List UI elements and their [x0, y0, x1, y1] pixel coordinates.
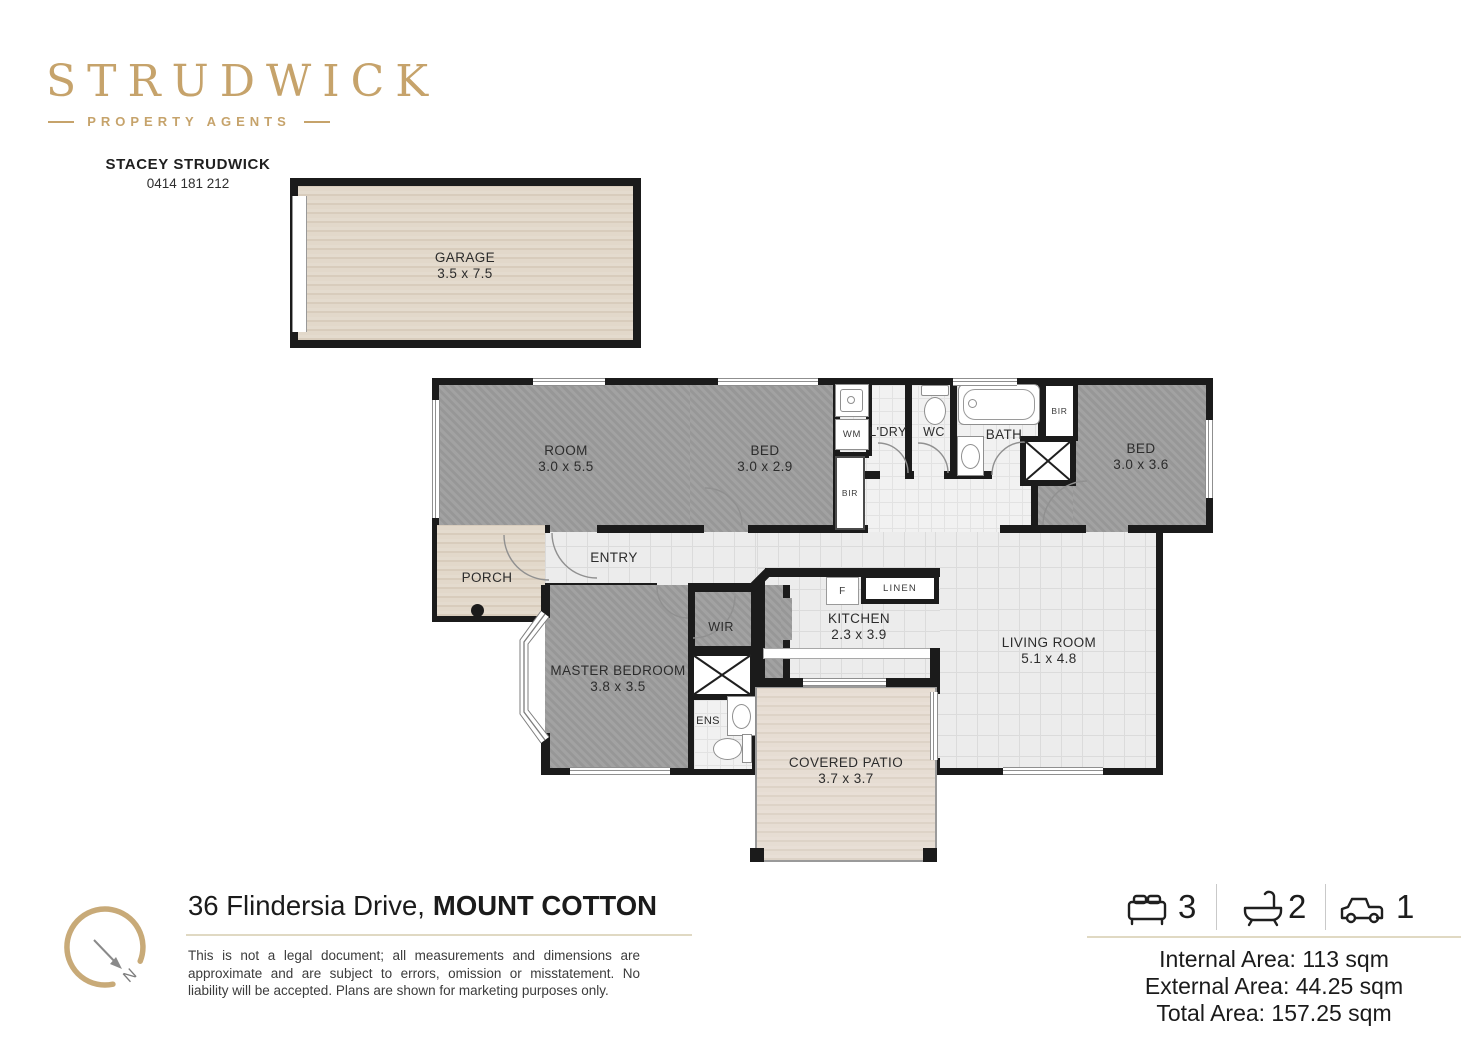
- disclaimer-line: This is not a legal document; all measur…: [188, 947, 640, 965]
- internal-area: Internal Area: 113 sqm: [1087, 946, 1461, 973]
- cars-count: 1: [1396, 888, 1414, 926]
- patio-label: COVERED PATIO3.7 x 3.7: [766, 755, 926, 786]
- compass-icon: N: [60, 902, 150, 992]
- areas-block: Internal Area: 113 sqm External Area: 44…: [1087, 946, 1461, 1027]
- bed-rear-label: BED3.0 x 3.6: [1076, 441, 1206, 472]
- master-label: MASTER BEDROOM3.8 x 3.5: [533, 663, 703, 694]
- ens-label: ENS: [689, 714, 727, 730]
- floorplan-page: STRUDWICK PROPERTY AGENTS STACEY STRUDWI…: [0, 0, 1472, 1041]
- wall-diagonal: [751, 571, 769, 589]
- bath-label: BATH: [969, 427, 1039, 443]
- beds-count: 3: [1178, 888, 1196, 926]
- stat-divider: [1216, 884, 1217, 930]
- living-label: LIVING ROOM5.1 x 4.8: [979, 635, 1119, 666]
- compass-letter: N: [120, 966, 140, 986]
- wir-label: WIR: [691, 620, 751, 636]
- room-front-label: ROOM3.0 x 5.5: [500, 443, 632, 474]
- wc-label: WC: [909, 425, 959, 441]
- address-rule: [186, 934, 692, 936]
- total-area: Total Area: 157.25 sqm: [1087, 1000, 1461, 1027]
- bed-front-label: BED3.0 x 2.9: [700, 443, 830, 474]
- entry-label: ENTRY: [574, 550, 654, 566]
- areas-rule: [1087, 936, 1461, 938]
- disclaimer-line: liability will be accepted. Plans are sh…: [188, 982, 640, 1000]
- plan-overlay: [0, 0, 1472, 1041]
- bed-icon: [1125, 890, 1169, 930]
- porch-label: PORCH: [437, 570, 537, 586]
- baths-count: 2: [1288, 888, 1306, 926]
- disclaimer: This is not a legal document; all measur…: [188, 947, 640, 1000]
- disclaimer-line: approximate and are subject to errors, o…: [188, 965, 640, 983]
- kitchen-label: KITCHEN2.3 x 3.9: [789, 611, 929, 642]
- stat-divider: [1325, 884, 1326, 930]
- bath-icon: [1240, 886, 1286, 930]
- address: 36 Flindersia Drive,MOUNT COTTON: [188, 890, 657, 922]
- address-street: 36 Flindersia Drive,: [188, 890, 425, 921]
- external-area: External Area: 44.25 sqm: [1087, 973, 1461, 1000]
- car-icon: [1338, 890, 1386, 930]
- address-suburb: MOUNT COTTON: [433, 890, 657, 921]
